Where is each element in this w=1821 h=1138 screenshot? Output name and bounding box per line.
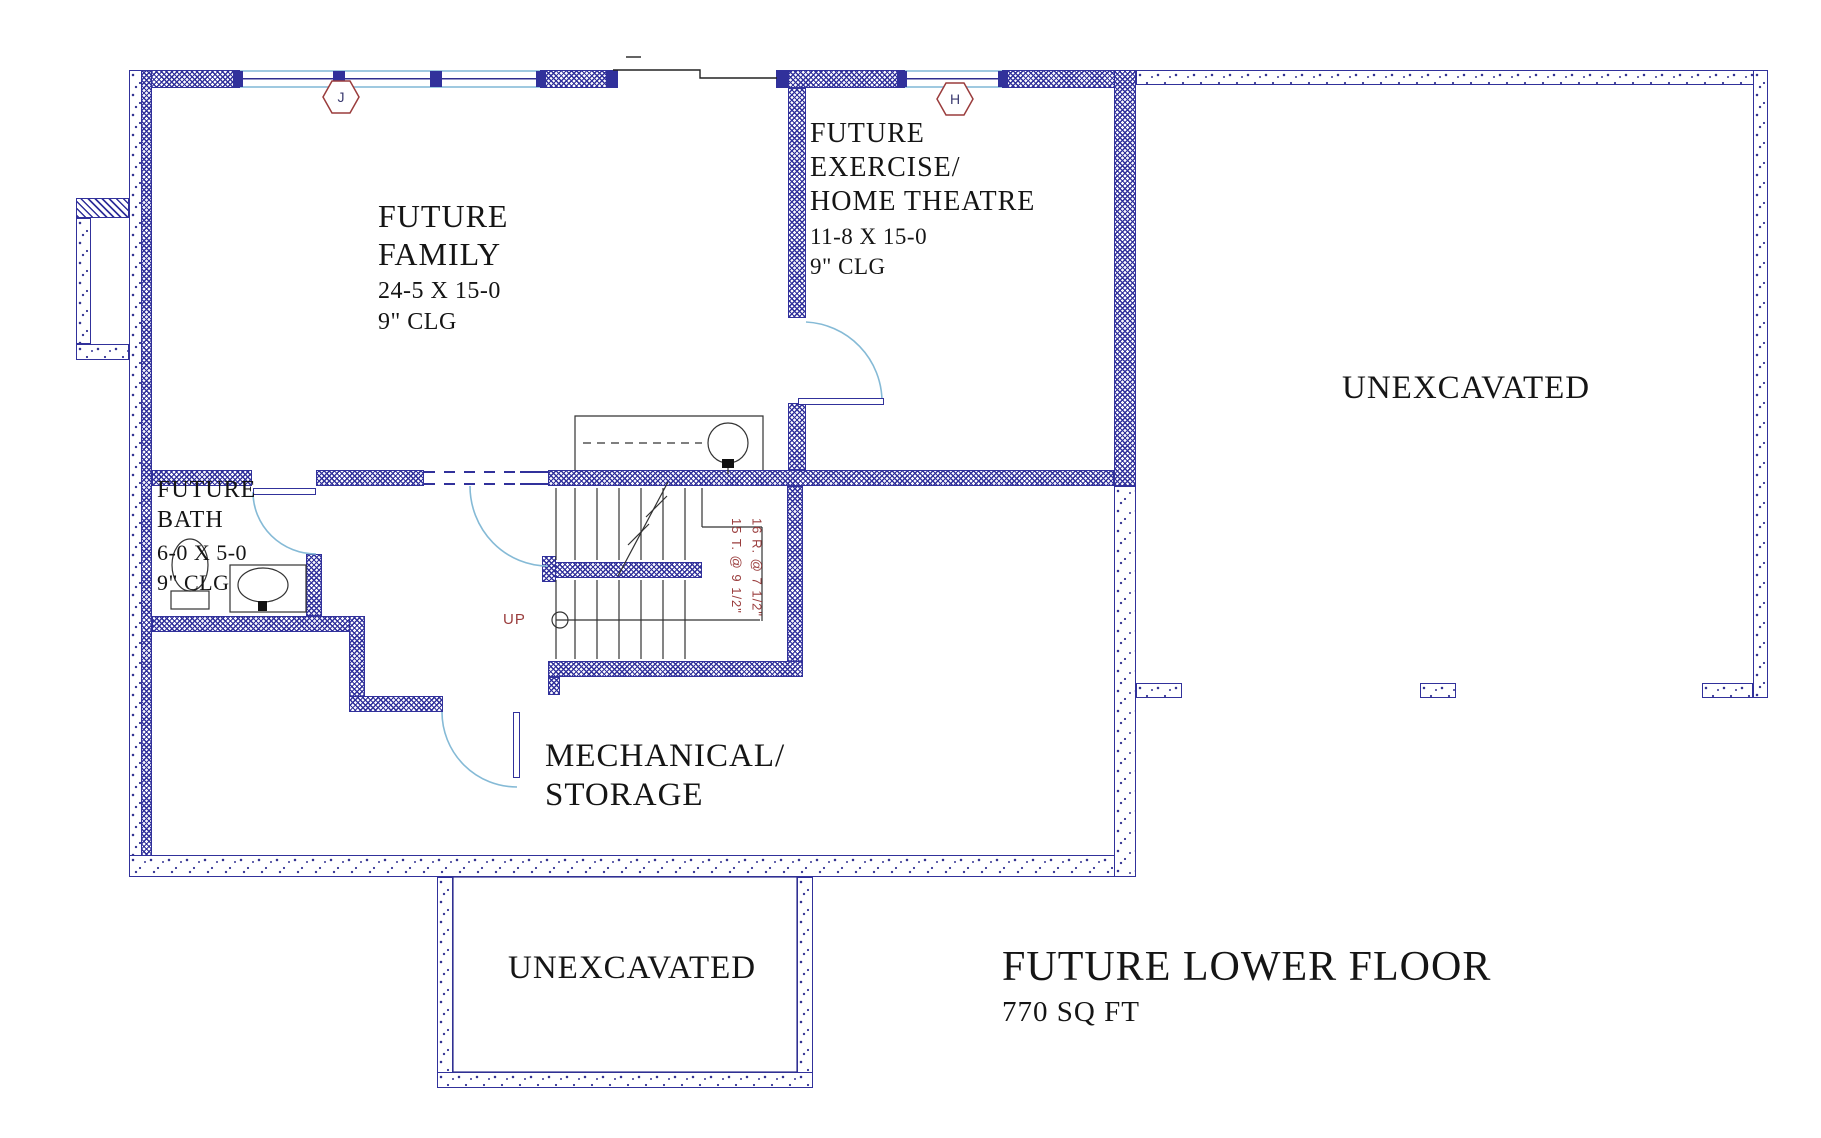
unexcavated-bottom-label: UNEXCAVATED	[508, 952, 756, 985]
stair-treads-note: 15 T. @ 9 1/2"	[726, 518, 746, 663]
drawing-area: 770 SQ FT	[1002, 998, 1491, 1027]
family-room-label: FUTURE FAMILY 24-5 X 15-0 9" CLG	[378, 200, 508, 338]
marker-letter: J	[338, 89, 345, 105]
unexcavated-right-label: UNEXCAVATED	[1342, 372, 1590, 405]
wall-above-line	[613, 57, 777, 78]
drawing-title: FUTURE LOWER FLOOR	[1002, 946, 1491, 988]
room-ceiling: 9" CLG	[810, 252, 1035, 282]
drawing-title-block: FUTURE LOWER FLOOR 770 SQ FT	[1002, 946, 1491, 1027]
room-dimensions: 6-0 X 5-0	[157, 538, 256, 568]
dashed-opening	[424, 472, 548, 484]
water-heater	[708, 423, 748, 463]
room-name-line: MECHANICAL/	[545, 740, 785, 773]
mechanical-door-arc	[442, 712, 517, 787]
exercise-door-leaf	[798, 398, 884, 405]
room-name-line: FUTURE	[157, 478, 256, 502]
exercise-door-arc	[806, 322, 882, 401]
room-dimensions: 11-8 X 15-0	[810, 222, 1035, 252]
faucet	[258, 601, 267, 611]
door-arcs	[253, 322, 882, 787]
stair-note: 16 R. @ 7 1/2" 15 T. @ 9 1/2"	[726, 518, 766, 663]
room-name-line: HOME THEATRE	[810, 188, 1035, 216]
mechanical-door-leaf	[513, 712, 520, 778]
bath-door-arc	[253, 492, 316, 554]
hall-door-arc	[470, 486, 548, 566]
room-dimensions: 24-5 X 15-0	[378, 276, 508, 307]
mechanical-room-label: MECHANICAL/ STORAGE	[545, 740, 785, 818]
rough-in-area	[575, 416, 763, 474]
room-ceiling: 9" CLG	[157, 568, 256, 598]
room-name-line: FAMILY	[378, 238, 508, 270]
bath-door-leaf	[253, 488, 316, 495]
window-marker-j: J	[322, 80, 360, 114]
window-marker-h: H	[936, 82, 974, 116]
room-name-line: FUTURE	[810, 120, 1035, 148]
room-name-line: EXERCISE/	[810, 154, 1035, 182]
exercise-room-label: FUTURE EXERCISE/ HOME THEATRE 11-8 X 15-…	[810, 120, 1035, 282]
room-name-line: FUTURE	[378, 200, 508, 232]
marker-letter: H	[950, 91, 960, 107]
stair-up-label: UP	[503, 611, 526, 628]
room-name-line: STORAGE	[545, 779, 785, 812]
room-ceiling: 9" CLG	[378, 307, 508, 338]
stair-risers-note: 16 R. @ 7 1/2"	[746, 518, 766, 663]
room-name-line: BATH	[157, 508, 256, 532]
floor-plan: J H FUTURE FAMILY 24-5 X 15-0 9" CLG FUT…	[0, 0, 1821, 1138]
bath-room-label: FUTURE BATH 6-0 X 5-0 9" CLG	[157, 478, 256, 597]
